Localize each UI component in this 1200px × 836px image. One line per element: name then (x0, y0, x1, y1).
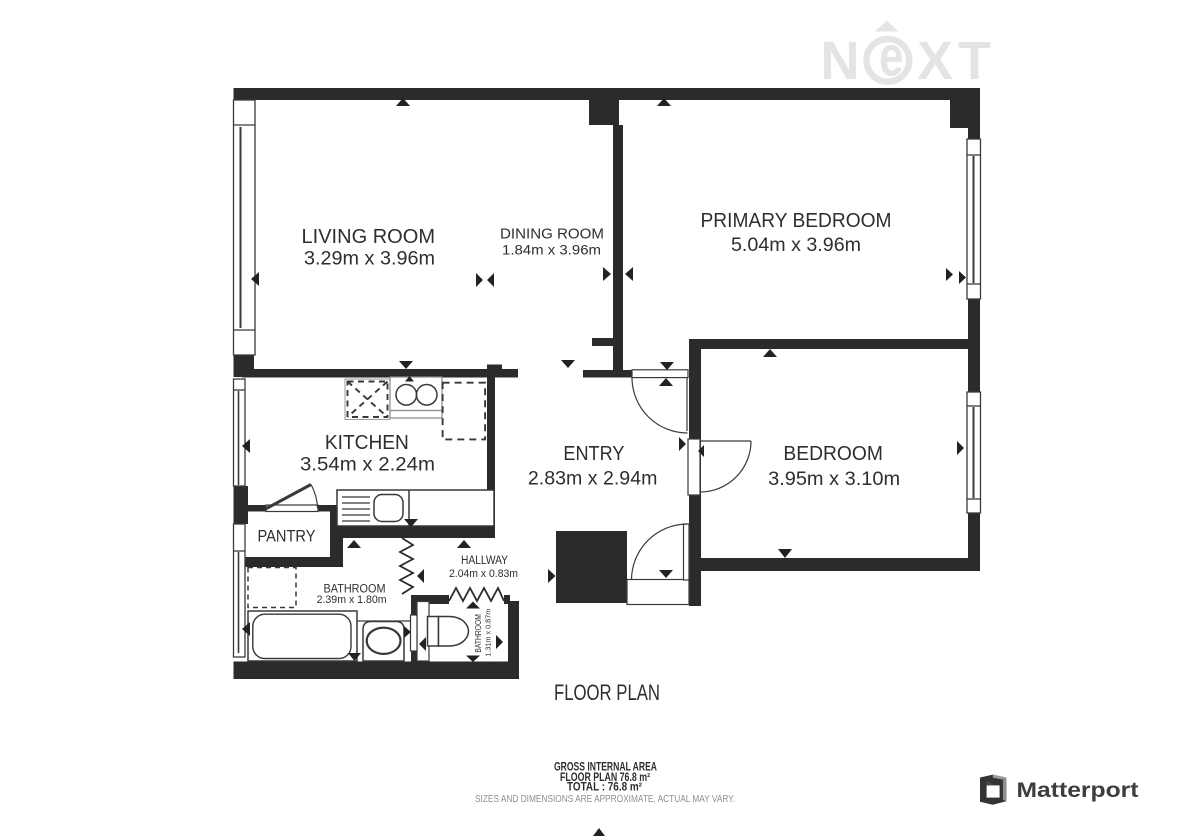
svg-text:KITCHEN: KITCHEN (325, 432, 409, 454)
svg-text:HALLWAY: HALLWAY (461, 555, 508, 567)
svg-text:1.31m x 0.87m: 1.31m x 0.87m (484, 609, 493, 657)
svg-text:2.83m x 2.94m: 2.83m x 2.94m (528, 469, 658, 490)
svg-text:5.04m x 3.96m: 5.04m x 3.96m (731, 235, 861, 256)
svg-text:N: N (821, 31, 860, 91)
svg-text:PRIMARY BEDROOM: PRIMARY BEDROOM (701, 210, 892, 232)
svg-text:SIZES AND DIMENSIONS ARE APPRO: SIZES AND DIMENSIONS ARE APPROXIMATE, AC… (475, 793, 735, 805)
svg-text:T: T (958, 31, 991, 91)
svg-text:2.04m x 0.83m: 2.04m x 0.83m (449, 568, 518, 580)
svg-text:X: X (917, 31, 953, 91)
svg-text:2.39m x 1.80m: 2.39m x 1.80m (317, 594, 387, 606)
svg-text:LIVING ROOM: LIVING ROOM (302, 226, 436, 248)
svg-text:PANTRY: PANTRY (258, 527, 316, 546)
svg-text:TOTAL : 76.8 m²: TOTAL : 76.8 m² (567, 782, 642, 794)
svg-text:ENTRY: ENTRY (563, 443, 624, 465)
svg-text:Matterport: Matterport (1017, 778, 1139, 802)
svg-text:e: e (879, 24, 904, 88)
svg-text:BEDROOM: BEDROOM (783, 443, 883, 465)
svg-text:3.54m x 2.24m: 3.54m x 2.24m (300, 455, 435, 476)
svg-text:BATHROOM: BATHROOM (474, 614, 483, 653)
svg-text:FLOOR PLAN: FLOOR PLAN (554, 680, 660, 705)
svg-text:1.84m x 3.96m: 1.84m x 3.96m (502, 241, 601, 257)
svg-text:DINING ROOM: DINING ROOM (500, 225, 604, 242)
svg-text:3.29m x 3.96m: 3.29m x 3.96m (304, 249, 435, 270)
svg-text:3.95m x 3.10m: 3.95m x 3.10m (768, 469, 900, 490)
